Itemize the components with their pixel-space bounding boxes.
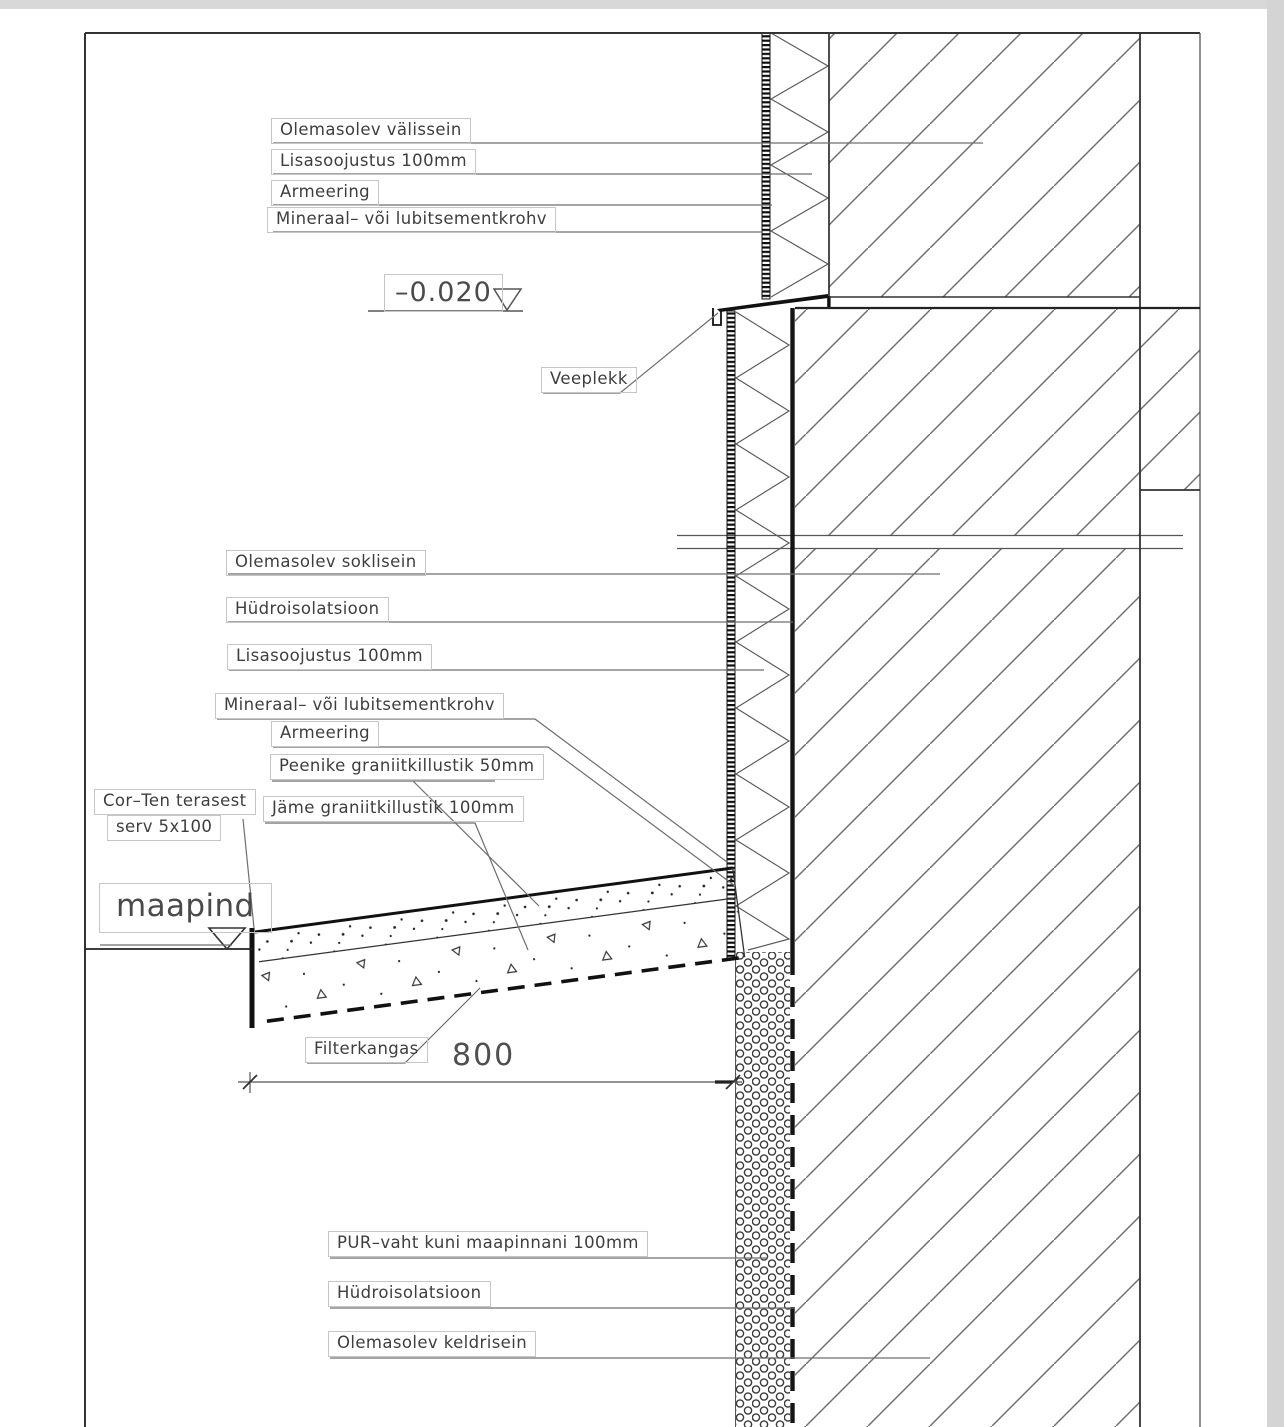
upper-insulation-zigzag [771, 33, 828, 297]
wall-extension-block [1140, 308, 1200, 490]
upper-plaster-reinforcement-band [762, 33, 770, 299]
label-existing-outer-wall: Olemasolev välissein [271, 118, 471, 144]
pur-foam-zone [735, 952, 790, 1427]
label-existing-basement-wall: Olemasolev keldrisein [328, 1331, 536, 1357]
label-filter-fabric: Filterkangas [305, 1037, 428, 1063]
corten-steel-edge [250, 928, 255, 1028]
existing-plinth-and-basement-wall-section [795, 308, 1140, 1427]
gravel-strip [255, 868, 745, 1021]
label-plinth-insulation: Lisasoojustus 100mm [227, 644, 432, 670]
label-basement-waterproofing: Hüdroisolatsioon [328, 1281, 491, 1307]
plinth-plaster-reinforcement-band [727, 311, 735, 958]
label-upper-insulation: Lisasoojustus 100mm [271, 149, 476, 175]
label-pur-foam: PUR–vaht kuni maapinnani 100mm [328, 1231, 648, 1257]
label-plinth-reinforcement: Armeering [271, 721, 379, 747]
label-upper-reinforcement: Armeering [271, 180, 379, 206]
horizontal-joint-band [677, 536, 1183, 548]
label-plinth-waterproofing: Hüdroisolatsioon [226, 597, 389, 623]
label-corten-edge-line2: serv 5x100 [107, 815, 221, 841]
dimension-800-text: 800 [452, 1038, 515, 1073]
label-corten-edge-line1: Cor–Ten terasest [94, 789, 256, 815]
step-corner [827, 296, 830, 309]
scan-edge-top [0, 0, 1284, 9]
label-ground-level: maapind [99, 883, 272, 933]
detail-drawing-canvas [0, 0, 1284, 1427]
plinth-waterproofing-line [790, 308, 794, 955]
construction-detail-drawing: Olemasolev välissein Lisasoojustus 100mm… [0, 0, 1284, 1427]
label-existing-plinth: Olemasolev soklisein [226, 550, 426, 576]
label-flashing: Veeplekk [541, 367, 637, 393]
plinth-insulation-zigzag [736, 312, 789, 950]
label-plinth-plaster: Mineraal– või lubitsementkrohv [215, 693, 504, 719]
label-level-mark: –0.020 [384, 274, 503, 312]
label-fine-gravel: Peenike graniitkillustik 50mm [270, 754, 544, 780]
scan-edge-right [1267, 0, 1284, 1427]
dimension-800 [238, 1072, 742, 1093]
label-coarse-gravel: Jäme graniitkillustik 100mm [263, 796, 524, 822]
label-upper-plaster: Mineraal– või lubitsementkrohv [267, 207, 556, 233]
existing-outer-wall-section [829, 33, 1140, 297]
